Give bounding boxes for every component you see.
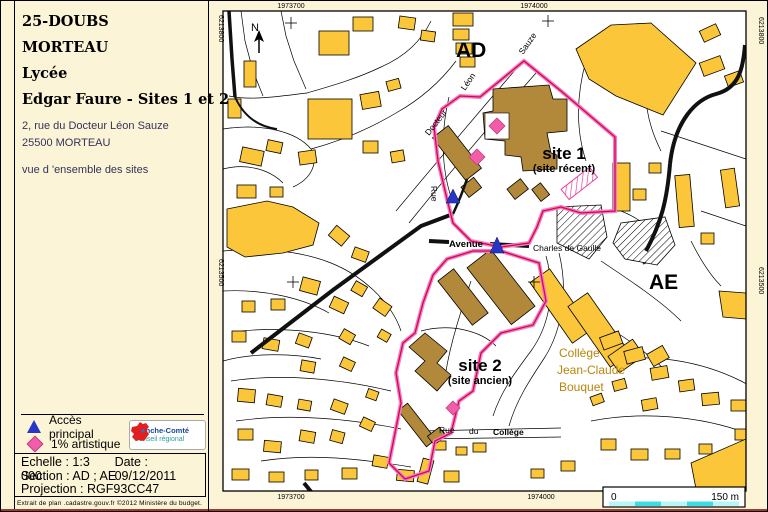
- info-panel: 25-DOUBS MORTEAU Lycée Edgar Faure - Sit…: [1, 1, 208, 512]
- street-rue-college-1: Rue: [439, 425, 455, 435]
- street-avenue: Avenue: [449, 239, 483, 250]
- site2-subtitle: (site ancien): [448, 375, 513, 387]
- scale-zero: 0: [611, 492, 617, 503]
- site2-title: site 2: [458, 356, 501, 375]
- legend: Accès principal 1% artistique: [27, 418, 127, 452]
- credit-line: Extrait de plan .cadastre.gouv.fr ©2012 …: [17, 500, 202, 507]
- coord-top-left: 1973700: [277, 3, 304, 10]
- street-rue-college-3: Collège: [493, 427, 524, 437]
- view-label: vue d 'ensemble des sites: [22, 164, 148, 176]
- college-label-2: Jean-Claude: [557, 363, 625, 377]
- site1-subtitle: (site récent): [533, 163, 596, 175]
- site1-title: site 1: [542, 144, 585, 163]
- college-label-3: Bouquet: [559, 380, 604, 394]
- legend-artistique-label: 1% artistique: [51, 437, 120, 451]
- coord-bottom-left: 1973700: [277, 494, 304, 501]
- info-section: Section : AD ; AE: [21, 470, 116, 484]
- college-label-1: Collège: [559, 346, 600, 360]
- region-logo: Franche-Comté Conseil régional: [129, 420, 206, 450]
- panel-rule: [14, 1, 15, 509]
- street-rue-college-2: du: [469, 426, 479, 436]
- coord-right-top: 6213800: [757, 17, 764, 44]
- school-type: Lycée: [22, 61, 204, 87]
- access-triangle-icon: [27, 420, 41, 433]
- coord-bottom-right: 1974000: [527, 494, 554, 501]
- legend-access-row: Accès principal: [27, 418, 127, 435]
- artistique-diamond-icon: [27, 435, 44, 452]
- address-line1: 2, rue du Docteur Léon Sauze: [22, 118, 169, 135]
- department-title: 25-DOUBS: [22, 9, 204, 35]
- info-projection: Projection : RGF93CC47: [21, 483, 159, 497]
- title-block: 25-DOUBS MORTEAU Lycée Edgar Faure - Sit…: [22, 9, 204, 113]
- legend-artistique-row: 1% artistique: [27, 435, 127, 452]
- address-block: 2, rue du Docteur Léon Sauze 25500 MORTE…: [22, 118, 169, 152]
- section-ae-label: AE: [649, 271, 678, 294]
- cadastral-map-sheet: N AD AE site 1 (site récent) site 2 (sit…: [0, 0, 768, 512]
- france-map-icon: [130, 421, 150, 443]
- coord-left-bottom: 6213500: [217, 259, 224, 286]
- city-title: MORTEAU: [22, 35, 204, 61]
- scale-max: 150 m: [711, 492, 739, 503]
- info-row-scale-date: Echelle : 1:3 000 Date : 09/12/2011: [21, 456, 199, 470]
- street-rue: Rue: [429, 186, 440, 202]
- scale-bar: 0 150 m: [603, 487, 745, 507]
- north-label: N: [251, 22, 259, 34]
- coord-right-bottom: 6213500: [757, 267, 764, 294]
- info-row-projection: Projection : RGF93CC47: [21, 483, 199, 497]
- section-ad-label: AD: [456, 39, 486, 62]
- school-name: Edgar Faure - Sites 1 et 2: [22, 87, 204, 113]
- info-scale: Echelle : 1:3 000: [21, 456, 101, 470]
- street-charles-de-gaulle: Charles de Gaulle: [533, 243, 601, 253]
- map-info-box: Echelle : 1:3 000 Date : 09/12/2011 Sect…: [14, 453, 206, 497]
- coord-left-top: 6213800: [217, 15, 224, 42]
- info-date: Date : 09/12/2011: [115, 456, 199, 470]
- address-line2: 25500 MORTEAU: [22, 135, 169, 152]
- coord-top-right: 1974000: [520, 3, 547, 10]
